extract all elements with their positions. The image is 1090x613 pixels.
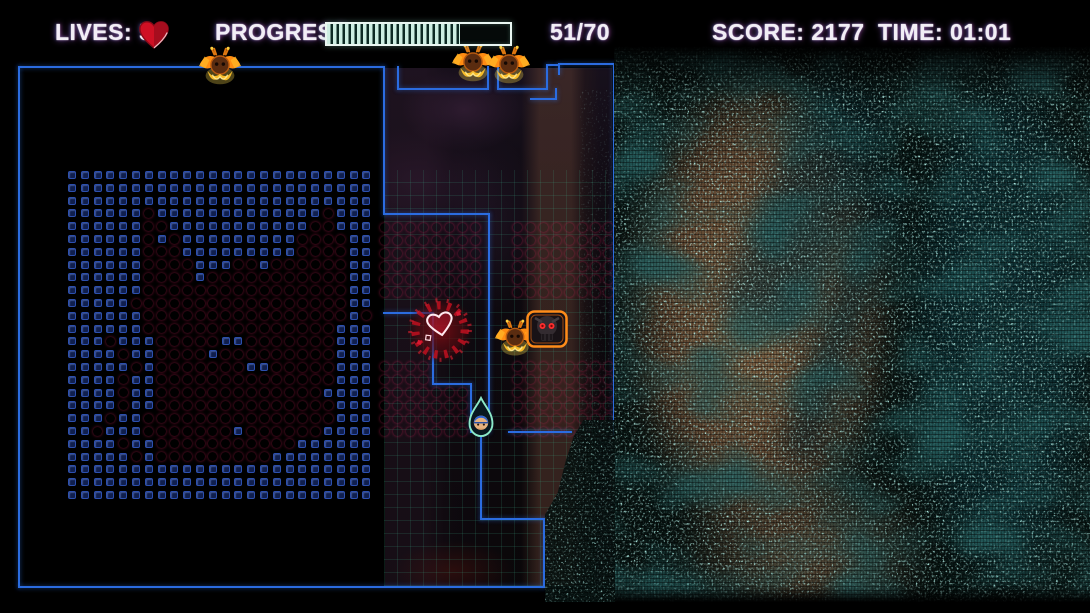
red-dot (157, 273, 166, 282)
brick-dot (222, 235, 230, 243)
brick-dot (209, 235, 217, 243)
red-dot (565, 249, 574, 258)
brick-dot (119, 453, 127, 461)
brick-dot (119, 171, 127, 179)
red-dot (393, 414, 402, 423)
brick-dot (196, 197, 204, 205)
red-dot (526, 375, 535, 384)
brick-dot (81, 491, 89, 499)
red-dot (513, 275, 522, 284)
brick-dot (81, 453, 89, 461)
red-dot (208, 324, 217, 333)
brick-dot (132, 235, 140, 243)
red-dot (336, 247, 345, 256)
brick-dot (234, 248, 242, 256)
red-dot (196, 337, 205, 346)
brick-dot (94, 222, 102, 230)
brick-dot (68, 286, 76, 294)
red-dot (272, 273, 281, 282)
red-dot (406, 401, 415, 410)
brick-dot (260, 184, 268, 192)
red-dot (272, 299, 281, 308)
red-dot (526, 249, 535, 258)
brick-dot (273, 171, 281, 179)
red-dot (285, 363, 294, 372)
brick-dot (350, 465, 358, 473)
brick-dot (81, 235, 89, 243)
red-dot (298, 337, 307, 346)
brick-dot (350, 197, 358, 205)
red-dot (380, 388, 389, 397)
red-dot (234, 350, 243, 359)
brick-dot (350, 478, 358, 486)
red-dot (552, 288, 561, 297)
red-dot (132, 363, 141, 372)
brick-dot (81, 248, 89, 256)
brick-dot (132, 171, 140, 179)
brick-dot (158, 465, 166, 473)
red-dot (196, 452, 205, 461)
brick-dot (247, 478, 255, 486)
brick-dot (94, 312, 102, 320)
red-dot (183, 311, 192, 320)
brick-dot (119, 273, 127, 281)
brick-dot (196, 261, 204, 269)
brick-dot (81, 286, 89, 294)
brick-dot (132, 184, 140, 192)
brick-dot (362, 440, 370, 448)
red-dot (565, 388, 574, 397)
red-dot (272, 260, 281, 269)
red-dot (324, 311, 333, 320)
red-dot (539, 401, 548, 410)
red-dot (208, 286, 217, 295)
red-dot (432, 223, 441, 232)
brick-dot (106, 184, 114, 192)
wall-segment (18, 66, 20, 588)
brick-dot (247, 363, 255, 371)
brick-dot (209, 350, 217, 358)
brick-dot (222, 171, 230, 179)
red-dot (526, 388, 535, 397)
red-dot (157, 247, 166, 256)
brick-dot (106, 171, 114, 179)
red-dot (144, 209, 153, 218)
wall-segment (383, 213, 490, 215)
brick-dot (68, 299, 76, 307)
brick-dot (183, 222, 191, 230)
brick-dot (94, 171, 102, 179)
brick-dot (362, 363, 370, 371)
brick-dot (119, 478, 127, 486)
brick-dot (350, 491, 358, 499)
brick-dot (350, 299, 358, 307)
red-dot (285, 324, 294, 333)
red-dot (234, 439, 243, 448)
brick-dot (132, 465, 140, 473)
red-dot (513, 362, 522, 371)
brick-dot (106, 209, 114, 217)
red-dot (157, 222, 166, 231)
red-dot (144, 235, 153, 244)
red-dot (221, 439, 230, 448)
brick-dot (350, 363, 358, 371)
brick-dot (286, 184, 294, 192)
red-dot (445, 388, 454, 397)
brick-dot (260, 491, 268, 499)
red-dot (183, 363, 192, 372)
brick-dot (196, 478, 204, 486)
brick-dot (119, 184, 127, 192)
red-dot (247, 350, 256, 359)
red-dot (324, 209, 333, 218)
red-dot (552, 362, 561, 371)
brick-dot (94, 376, 102, 384)
brick-dot (209, 465, 217, 473)
brick-dot (145, 389, 153, 397)
red-dot (565, 362, 574, 371)
brick-dot (260, 209, 268, 217)
red-dot (106, 337, 115, 346)
brick-dot (324, 440, 332, 448)
red-dot (157, 311, 166, 320)
brick-dot (196, 222, 204, 230)
brick-dot (183, 171, 191, 179)
skull-cage-enemy (525, 309, 569, 349)
red-dot (324, 286, 333, 295)
red-dot (298, 273, 307, 282)
brick-dot (132, 389, 140, 397)
red-dot (432, 401, 441, 410)
brick-dot (81, 184, 89, 192)
brick-dot (324, 197, 332, 205)
red-dot (208, 414, 217, 423)
red-dot (311, 363, 320, 372)
brick-dot (324, 184, 332, 192)
brick-dot (94, 491, 102, 499)
red-dot (432, 262, 441, 271)
red-dot (539, 414, 548, 423)
red-dot (183, 375, 192, 384)
red-dot (144, 299, 153, 308)
red-dot (221, 299, 230, 308)
red-dot (419, 275, 428, 284)
brick-dot (170, 478, 178, 486)
red-dot (144, 247, 153, 256)
brick-dot (298, 453, 306, 461)
red-dot (196, 324, 205, 333)
player-character (466, 396, 496, 438)
brick-dot (234, 209, 242, 217)
brick-dot (362, 401, 370, 409)
brick-dot (273, 248, 281, 256)
red-dot (157, 363, 166, 372)
wall-segment (397, 66, 399, 90)
brick-dot (145, 363, 153, 371)
red-dot (393, 401, 402, 410)
red-dot (406, 223, 415, 232)
brick-dot (350, 222, 358, 230)
red-dot (471, 223, 480, 232)
brick-dot (68, 491, 76, 499)
red-dot (336, 273, 345, 282)
red-dot (432, 275, 441, 284)
brick-dot (132, 312, 140, 320)
brick-dot (324, 465, 332, 473)
red-dot (513, 414, 522, 423)
red-dot (285, 388, 294, 397)
red-dot (285, 260, 294, 269)
brick-dot (158, 171, 166, 179)
brick-dot (247, 248, 255, 256)
brick-dot (81, 465, 89, 473)
brick-dot (68, 325, 76, 333)
brick-dot (222, 197, 230, 205)
brick-dot (209, 209, 217, 217)
brick-dot (196, 465, 204, 473)
brick-dot (273, 478, 281, 486)
brick-dot (260, 171, 268, 179)
red-dot (285, 439, 294, 448)
red-dot (196, 311, 205, 320)
red-dot (285, 427, 294, 436)
brick-dot (362, 337, 370, 345)
red-dot (552, 262, 561, 271)
brick-dot (337, 389, 345, 397)
brick-dot (132, 273, 140, 281)
red-dot (406, 414, 415, 423)
brick-dot (106, 248, 114, 256)
red-dot (445, 249, 454, 258)
red-dot (285, 401, 294, 410)
brick-dot (94, 440, 102, 448)
red-dot (298, 247, 307, 256)
red-dot (471, 249, 480, 258)
red-dot (144, 324, 153, 333)
brick-dot (286, 491, 294, 499)
red-dot (247, 286, 256, 295)
brick-dot (170, 222, 178, 230)
brick-dot (234, 337, 242, 345)
red-dot (144, 414, 153, 423)
brick-dot (337, 491, 345, 499)
brick-dot (234, 491, 242, 499)
brick-dot (311, 440, 319, 448)
red-dot (272, 439, 281, 448)
red-dot (157, 375, 166, 384)
brick-dot (119, 235, 127, 243)
brick-dot (183, 184, 191, 192)
red-dot (234, 286, 243, 295)
red-dot (324, 273, 333, 282)
red-dot (324, 324, 333, 333)
brick-dot (81, 299, 89, 307)
red-dot (445, 236, 454, 245)
red-dot (144, 273, 153, 282)
brick-dot (94, 389, 102, 397)
brick-dot (81, 440, 89, 448)
brick-dot (68, 376, 76, 384)
brick-dot (337, 184, 345, 192)
brick-dot (234, 171, 242, 179)
red-dot (247, 427, 256, 436)
red-dot (432, 236, 441, 245)
brick-dot (132, 401, 140, 409)
brick-dot (119, 222, 127, 230)
red-dot (208, 337, 217, 346)
brick-dot (170, 197, 178, 205)
red-dot (247, 260, 256, 269)
brick-dot (94, 209, 102, 217)
red-dot (208, 363, 217, 372)
red-dot (183, 299, 192, 308)
red-dot (324, 414, 333, 423)
brick-dot (94, 184, 102, 192)
red-dot (196, 350, 205, 359)
red-dot (311, 311, 320, 320)
brick-dot (324, 478, 332, 486)
brick-dot (362, 325, 370, 333)
brick-dot (81, 401, 89, 409)
red-dot (119, 439, 128, 448)
hud-bar: LIVES: 5 PROGRESS: 51/70 SCORE: 2177 TIM… (0, 0, 1090, 66)
brick-dot (337, 209, 345, 217)
red-dot (272, 414, 281, 423)
red-dot (539, 262, 548, 271)
brick-dot (106, 325, 114, 333)
red-dot (196, 401, 205, 410)
red-dot (221, 350, 230, 359)
red-dot (419, 249, 428, 258)
brick-dot (132, 325, 140, 333)
red-dot (298, 363, 307, 372)
red-dot (157, 401, 166, 410)
red-dot (144, 311, 153, 320)
red-dot (208, 452, 217, 461)
brick-dot (170, 491, 178, 499)
brick-dot (247, 222, 255, 230)
red-dot (298, 324, 307, 333)
brick-dot (183, 478, 191, 486)
red-dot (234, 324, 243, 333)
red-dot (157, 439, 166, 448)
red-dot (526, 362, 535, 371)
red-dot (234, 452, 243, 461)
brick-dot (106, 286, 114, 294)
red-dot (183, 350, 192, 359)
red-dot (324, 375, 333, 384)
brick-dot (158, 235, 166, 243)
red-dot (157, 286, 166, 295)
red-dot (234, 273, 243, 282)
red-dot (298, 350, 307, 359)
brick-dot (209, 222, 217, 230)
red-dot (393, 236, 402, 245)
red-dot (221, 414, 230, 423)
wall-segment (432, 383, 472, 385)
brick-dot (119, 209, 127, 217)
red-dot (272, 286, 281, 295)
red-dot (272, 311, 281, 320)
brick-dot (196, 491, 204, 499)
brick-dot (209, 261, 217, 269)
red-dot (393, 262, 402, 271)
red-dot (393, 427, 402, 436)
red-dot (208, 439, 217, 448)
brick-dot (350, 171, 358, 179)
red-dot (119, 401, 128, 410)
red-dot (170, 260, 179, 269)
brick-dot (94, 235, 102, 243)
brick-dot (324, 453, 332, 461)
red-dot (406, 236, 415, 245)
red-dot (552, 414, 561, 423)
red-dot (336, 235, 345, 244)
brick-dot (337, 350, 345, 358)
red-dot (336, 260, 345, 269)
brick-dot (311, 491, 319, 499)
red-dot (552, 249, 561, 258)
progress-bar (325, 22, 512, 46)
red-dot (157, 324, 166, 333)
red-dot (311, 414, 320, 423)
red-dot (380, 275, 389, 284)
red-dot (221, 388, 230, 397)
brick-dot (362, 478, 370, 486)
brick-dot (68, 401, 76, 409)
brick-dot (350, 389, 358, 397)
time-display: TIME: 01:01 (878, 19, 1011, 46)
brick-dot (311, 197, 319, 205)
brick-dot (81, 414, 89, 422)
static-corruption-area (614, 46, 1090, 602)
brick-dot (350, 286, 358, 294)
brick-dot (81, 363, 89, 371)
brick-dot (260, 465, 268, 473)
red-dot (247, 273, 256, 282)
brick-dot (132, 248, 140, 256)
brick-dot (94, 350, 102, 358)
red-dot (221, 311, 230, 320)
red-dot (311, 427, 320, 436)
red-dot (196, 388, 205, 397)
brick-dot (286, 235, 294, 243)
brick-dot (106, 261, 114, 269)
brick-dot (286, 171, 294, 179)
red-dot (260, 286, 269, 295)
brick-dot (170, 171, 178, 179)
brick-dot (132, 197, 140, 205)
red-dot (183, 401, 192, 410)
brick-dot (350, 248, 358, 256)
red-dot (260, 350, 269, 359)
brick-dot (362, 184, 370, 192)
brick-dot (119, 325, 127, 333)
wall-segment (530, 98, 557, 100)
brick-dot (260, 363, 268, 371)
red-dot (380, 427, 389, 436)
red-dot (311, 401, 320, 410)
red-dot (221, 452, 230, 461)
brick-dot (350, 273, 358, 281)
red-dot (445, 427, 454, 436)
brick-dot (260, 478, 268, 486)
red-dot (170, 414, 179, 423)
brick-dot (68, 222, 76, 230)
red-dot (208, 375, 217, 384)
red-dot (285, 337, 294, 346)
brick-dot (350, 261, 358, 269)
